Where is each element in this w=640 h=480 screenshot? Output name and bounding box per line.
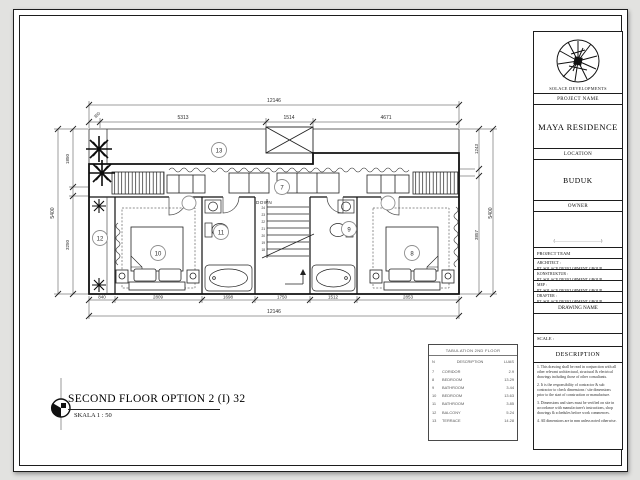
svg-text:18: 18: [261, 248, 265, 252]
tag-bathroom-left: 11: [218, 230, 225, 236]
legend-col-area: LUAS: [498, 359, 514, 364]
dim-right-1243: 1243: [474, 143, 479, 154]
bathroom-left-fixtures: [205, 200, 252, 291]
legend-row: 13 TERRACE 14.28: [429, 416, 517, 424]
legend-row: 9 BATHROOM 3.44: [429, 383, 517, 391]
dim-right-3857: 3857: [474, 229, 479, 240]
legend-row: 10 BEDROOM 13.63: [429, 392, 517, 400]
legend-header-row: N DESCRIPTION LUAS: [429, 356, 517, 367]
team-mep: MEP : PT. SOLACE DEVELOPMENT GROUP: [534, 281, 622, 292]
dim-bot-840: 840: [98, 295, 106, 300]
svg-text:19: 19: [261, 241, 265, 245]
dim-left-3250: 3250: [65, 239, 70, 250]
area-legend-table: TABULATION 2ND FLOOR N DESCRIPTION LUAS …: [428, 344, 518, 441]
project-team-label: PROJECT TEAM: [534, 248, 622, 259]
dim-top-1514: 1514: [283, 115, 294, 121]
svg-text:23: 23: [261, 213, 265, 217]
dim-bot-2853: 2853: [403, 295, 414, 300]
plants: [86, 136, 115, 292]
tag-terrace: 13: [216, 148, 223, 154]
scale-label: SCALE :: [534, 334, 622, 347]
note-2: 2. It is the responsibility of contracto…: [537, 383, 619, 398]
legend-title: TABULATION 2ND FLOOR: [429, 345, 517, 356]
project-name-label: PROJECT NAME: [534, 94, 622, 105]
location-value: BUDUK: [534, 160, 622, 201]
dim-bot-1750: 1750: [277, 295, 288, 300]
dim-bot-1512: 1512: [328, 295, 339, 300]
legend-row: 11 BATHROOM 3.85: [429, 400, 517, 408]
closet-rod-scallop: [169, 168, 409, 172]
legend-row: 12 BALCONY 5.24: [429, 408, 517, 416]
dim-left-overall: 5400: [50, 207, 56, 218]
svg-text:21: 21: [261, 227, 265, 231]
owner-value: (.......................................…: [534, 212, 622, 248]
legend-row: 8 BEDROOM 13.29: [429, 375, 517, 383]
svg-text:20: 20: [261, 234, 265, 238]
note-3: 3. Dimensions and sizes must be verified…: [537, 401, 619, 416]
dim-bot-2809: 2809: [153, 295, 164, 300]
tag-balcony: 12: [97, 236, 104, 242]
staircase: [262, 199, 314, 284]
dim-top-overall: 12146: [267, 98, 281, 104]
tag-bedroom-left: 10: [155, 251, 162, 257]
door-swings: [169, 197, 399, 215]
screenshot-stage: DOWN 24 23 22 21 20 19 18: [0, 0, 640, 480]
owner-label: OWNER: [534, 201, 622, 212]
drawing-title-rule: [68, 409, 220, 410]
stair-break-line: [262, 234, 314, 258]
drawing-title-text: SECOND FLOOR OPTION 2 (I) 32: [68, 393, 245, 405]
team-drafter: DRAFTER : PT. SOLACE DEVELOPMENT GROUP: [534, 292, 622, 303]
dim-right-overall: 5400: [488, 207, 494, 218]
bathroom-right-fixtures: [312, 200, 355, 291]
tag-empty-left-circle: [182, 196, 196, 210]
company-name: SOLACE DEVELOPMENTS: [549, 86, 607, 93]
dim-top-350: 350: [93, 110, 102, 119]
void-skylight: [266, 127, 313, 153]
title-block-logo-section: SOLACE DEVELOPMENTS: [534, 32, 622, 94]
drawing-scale-text: SKALA 1 : 50: [74, 412, 112, 419]
dim-left-1850: 1850: [65, 153, 70, 164]
svg-text:22: 22: [261, 220, 265, 224]
dim-bot-1698: 1698: [223, 295, 234, 300]
dim-top-4671: 4671: [380, 115, 391, 121]
description-label: DESCRIPTION: [534, 347, 622, 363]
location-label: LOCATION: [534, 149, 622, 160]
legend-row: 7 CORIDOR 2.9: [429, 367, 517, 375]
note-4: 4. All dimensions are in mm unless noted…: [537, 419, 619, 424]
legend-col-n: N: [432, 359, 442, 364]
tag-empty-right-circle: [381, 196, 395, 210]
stair-direction-arrow: [285, 271, 303, 284]
company-logo-icon: [553, 36, 603, 86]
drawing-name-value: [534, 314, 622, 334]
drawing-name-label: DRAWING NAME: [534, 303, 622, 314]
team-architect: ARCHITECT : PT. SOLACE DEVELOPMENT GROUP: [534, 259, 622, 270]
project-name-value: MAYA RESIDENCE: [534, 105, 622, 149]
svg-text:24: 24: [261, 206, 265, 210]
team-konstruktur: KONSTRUKTUR : PT. SOLACE DEVELOPMENT GRO…: [534, 270, 622, 281]
drawing-sheet: DOWN 24 23 22 21 20 19 18: [13, 9, 628, 472]
dim-top-5313: 5313: [177, 115, 188, 121]
dim-bottom-overall: 12146: [267, 309, 281, 315]
description-notes: 1. This drawing shall be read in conjunc…: [534, 363, 622, 449]
note-1: 1. This drawing shall be read in conjunc…: [537, 365, 619, 380]
stair-riser-numbers: 24 23 22 21 20 19 18: [261, 206, 265, 252]
title-block: SOLACE DEVELOPMENTS PROJECT NAME MAYA RE…: [533, 31, 623, 450]
stair-down-label: DOWN: [256, 200, 272, 205]
legend-col-description: DESCRIPTION: [442, 359, 498, 364]
